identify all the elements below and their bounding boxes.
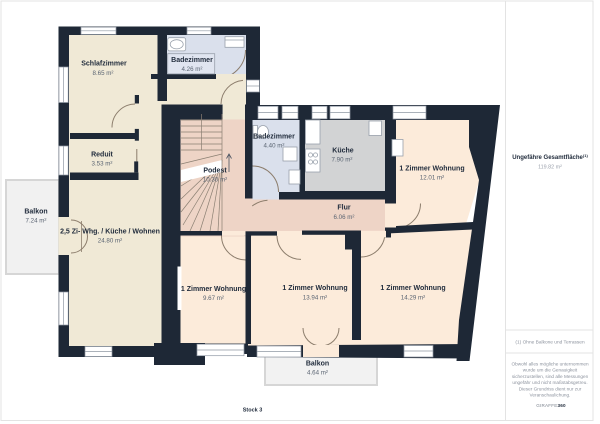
svg-text:wurde um die Genauigkeit: wurde um die Genauigkeit	[523, 368, 578, 373]
svg-text:Balkon: Balkon	[306, 361, 329, 368]
svg-text:Reduit: Reduit	[91, 152, 113, 159]
svg-text:GIRAFFE360: GIRAFFE360	[536, 403, 566, 408]
svg-text:1 Zimmer Wohnung: 1 Zimmer Wohnung	[380, 285, 445, 292]
svg-text:Küche: Küche	[332, 148, 354, 155]
svg-text:ungefähr und nicht maßstabsget: ungefähr und nicht maßstabsgetreu.	[512, 380, 587, 385]
svg-text:14.29 m²: 14.29 m²	[401, 294, 425, 301]
svg-text:8.65 m²: 8.65 m²	[93, 70, 114, 77]
svg-text:119.82 m²: 119.82 m²	[538, 165, 562, 171]
svg-text:Badezimmer: Badezimmer	[171, 57, 213, 64]
svg-text:Flur: Flur	[337, 205, 350, 212]
svg-text:1 Zimmer Wohnung: 1 Zimmer Wohnung	[181, 286, 246, 293]
svg-text:13.94 m²: 13.94 m²	[303, 294, 327, 301]
svg-text:Schlafzimmer: Schlafzimmer	[81, 61, 127, 68]
svg-text:4.26 m²: 4.26 m²	[182, 66, 203, 73]
svg-text:sicherzustellen, sind alle Mes: sicherzustellen, sind alle Messungen	[512, 374, 589, 379]
svg-text:Badezimmer: Badezimmer	[253, 134, 295, 141]
svg-text:Veranschaulichung.: Veranschaulichung.	[530, 393, 571, 398]
svg-text:4.40 m²: 4.40 m²	[264, 142, 285, 149]
svg-text:Balkon: Balkon	[24, 209, 47, 216]
svg-text:1 Zimmer Wohnung: 1 Zimmer Wohnung	[282, 285, 347, 292]
svg-text:7.24 m²: 7.24 m²	[26, 218, 47, 225]
svg-text:4.64 m²: 4.64 m²	[307, 369, 328, 376]
svg-text:2,5 Zi- Whg. / Küche / Wohnen: 2,5 Zi- Whg. / Küche / Wohnen	[60, 229, 160, 236]
svg-text:12.01 m²: 12.01 m²	[420, 175, 444, 182]
svg-text:Ungefähre Gesamtfläche(1): Ungefähre Gesamtfläche(1)	[512, 153, 588, 161]
svg-text:1 Zimmer Wohnung: 1 Zimmer Wohnung	[399, 166, 464, 173]
svg-text:6.06 m²: 6.06 m²	[334, 214, 355, 221]
svg-text:3.53 m²: 3.53 m²	[92, 160, 113, 167]
svg-text:(1) Ohne Balkone und Terrassen: (1) Ohne Balkone und Terrassen	[515, 340, 585, 346]
svg-text:Dieser Grundriss dient nur zur: Dieser Grundriss dient nur zur	[519, 386, 582, 391]
svg-text:24.80 m²: 24.80 m²	[98, 237, 122, 244]
svg-text:Stock 3: Stock 3	[243, 408, 263, 414]
svg-text:7.90 m²: 7.90 m²	[332, 157, 353, 164]
svg-text:10.30 m²: 10.30 m²	[203, 177, 227, 184]
svg-text:Obwohl alles mögliche unternom: Obwohl alles mögliche unternommen	[511, 362, 589, 367]
svg-text:9.67 m²: 9.67 m²	[203, 295, 224, 302]
svg-text:Podest: Podest	[203, 168, 227, 175]
